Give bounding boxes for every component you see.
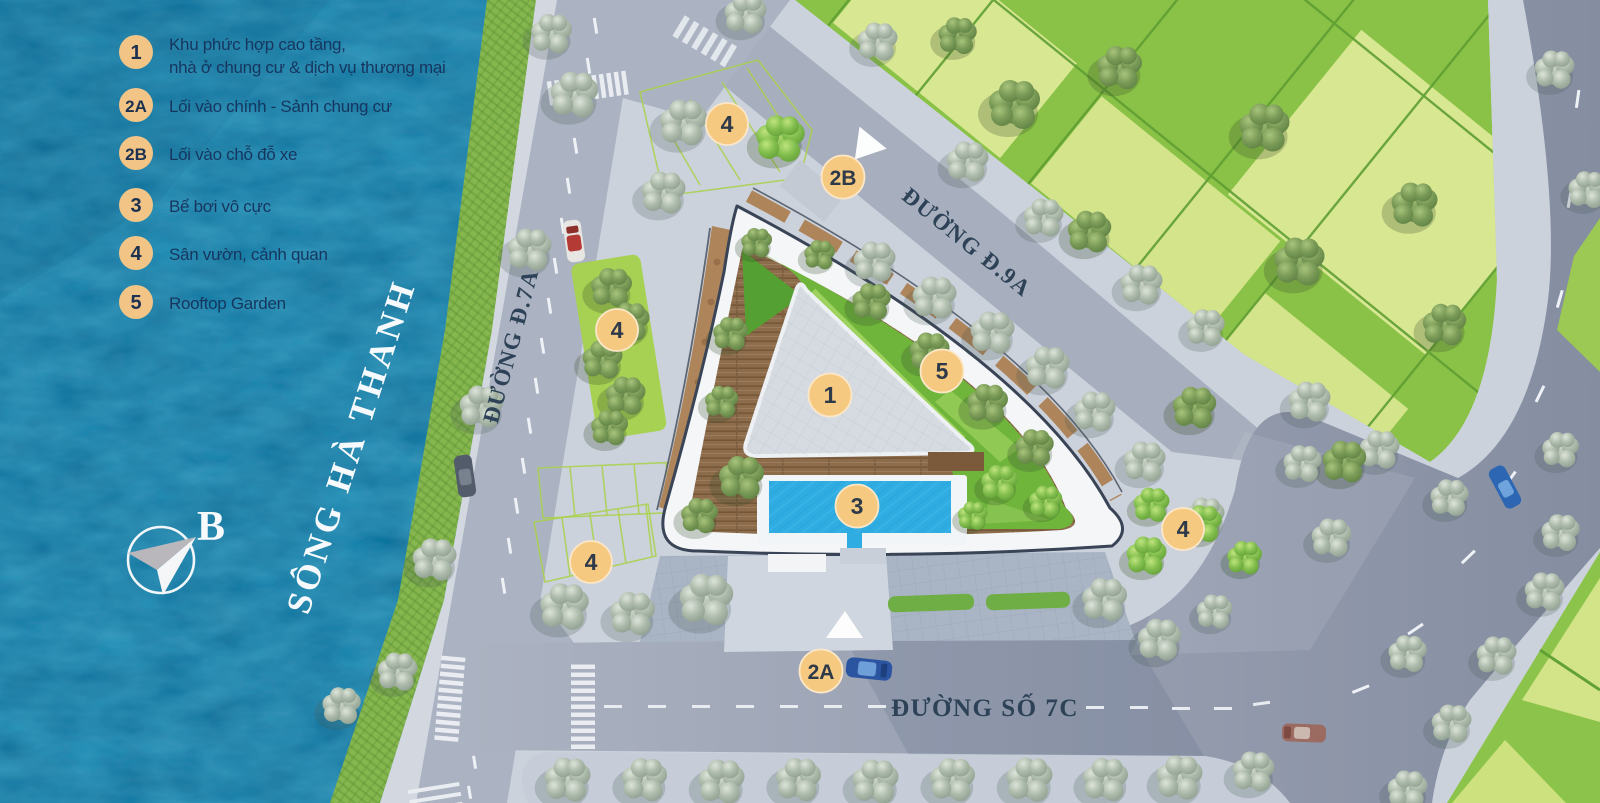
svg-text:Bể bơi vô cực: Bể bơi vô cực [169,197,272,216]
svg-text:Rooftop Garden: Rooftop Garden [169,294,286,313]
svg-text:Lối vào chỗ đỗ xe: Lối vào chỗ đỗ xe [169,145,297,164]
svg-text:ĐƯỜNG SỐ 7C: ĐƯỜNG SỐ 7C [891,693,1079,722]
svg-text:Sân vườn, cảnh quan: Sân vườn, cảnh quan [169,245,328,264]
svg-text:1: 1 [824,382,837,408]
svg-text:2A: 2A [125,97,147,116]
svg-text:1: 1 [130,42,141,64]
svg-text:Lối vào chính - Sảnh chung cư: Lối vào chính - Sảnh chung cư [169,97,392,116]
svg-text:2B: 2B [830,167,857,190]
svg-text:Khu phức hợp cao tầng,: Khu phức hợp cao tầng, [169,35,346,54]
svg-text:5: 5 [936,358,949,384]
svg-text:2A: 2A [808,661,835,684]
svg-text:4: 4 [1177,516,1190,542]
svg-text:4: 4 [611,317,624,343]
svg-text:3: 3 [130,195,141,217]
svg-text:4: 4 [585,549,598,575]
svg-text:B: B [197,504,225,550]
svg-text:4: 4 [721,111,734,137]
svg-text:nhà ở chung cư & dịch vụ thươn: nhà ở chung cư & dịch vụ thương mại [169,58,445,77]
svg-text:4: 4 [130,243,142,265]
svg-text:2B: 2B [125,145,147,164]
svg-text:5: 5 [130,292,141,314]
svg-text:3: 3 [851,493,864,519]
